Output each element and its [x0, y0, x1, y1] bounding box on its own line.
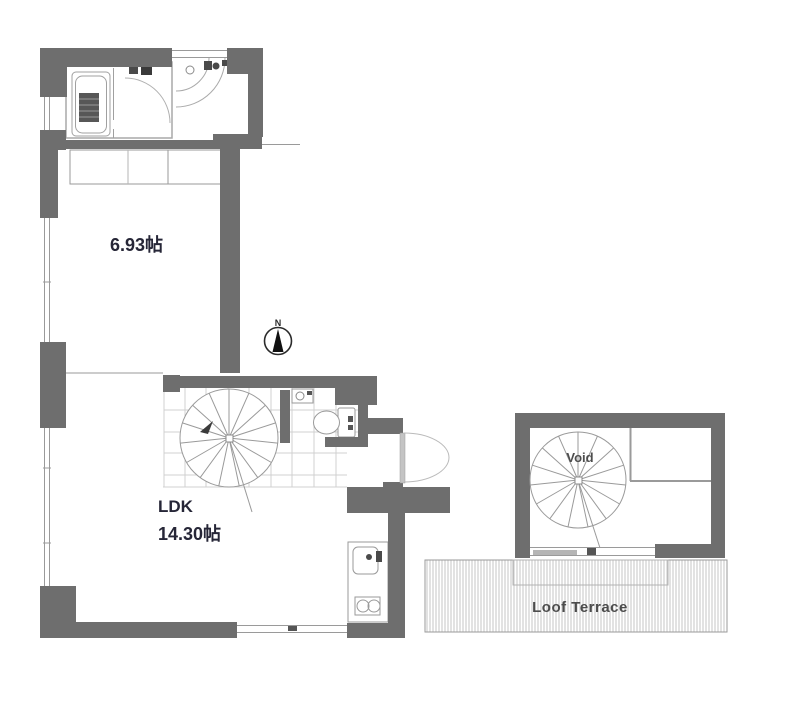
wall-segment: [40, 622, 237, 638]
wall-segment: [388, 513, 405, 638]
wall-segment: [227, 48, 263, 74]
void-label: Void: [566, 450, 593, 465]
entrance-door-swing: [404, 433, 449, 482]
wall-segment: [335, 376, 377, 405]
kitchen-faucet-base-icon: [376, 551, 382, 562]
sliding-door-handle-icon: [587, 548, 596, 555]
entrance-door-leaf: [400, 433, 405, 483]
window-left-3: [43, 427, 51, 587]
toilet-control-icon: [348, 425, 353, 430]
washbasin-drain: [186, 66, 194, 74]
void-room-divider: [630, 428, 711, 481]
wall-segment: [40, 130, 66, 150]
compass-north-label: N: [275, 318, 282, 328]
bedroom-area-label: 6.93帖: [110, 234, 163, 255]
wall-segment: [711, 428, 725, 557]
entrance: [400, 433, 449, 483]
kitchen: [348, 542, 388, 622]
wall-segment: [347, 623, 388, 638]
terrace-label: Loof Terrace: [532, 599, 628, 616]
wall-segment: [515, 413, 725, 428]
roof-terrace-deck: [425, 560, 727, 632]
wall-segment: [40, 48, 67, 97]
kitchen-sink: [353, 547, 378, 574]
window-left-1: [45, 96, 50, 131]
wall-segment: [347, 487, 450, 513]
shower-mixer-icon: [129, 67, 138, 74]
bathtub-panel: [79, 93, 99, 122]
kitchen-faucet-icon: [366, 554, 372, 560]
wall-segment: [40, 586, 76, 623]
wall-segment: [248, 74, 263, 137]
toilet-tank: [338, 408, 355, 437]
closet-left: [70, 150, 168, 184]
wall-segment: [65, 48, 172, 67]
spiral-staircase-main: [180, 389, 278, 512]
toilet-bowl: [314, 411, 340, 434]
north-arrow-icon: [273, 329, 284, 352]
floor-plan-drawing: N 6.93帖 LDK 14.30帖 Void Loof Terrace: [0, 0, 800, 722]
washroom: [176, 58, 228, 107]
wall-segment: [220, 149, 240, 373]
bathroom: [66, 62, 172, 138]
wall-segment: [655, 544, 725, 558]
wall-segment: [40, 150, 58, 218]
wall-segment: [65, 140, 233, 149]
toilet-basin-faucet-icon: [307, 391, 312, 395]
void-room: [530, 428, 711, 548]
spiral-staircase-post: [226, 435, 233, 442]
north-compass: N: [265, 318, 292, 355]
sliding-door-track: [533, 550, 577, 555]
wall-segment: [40, 342, 66, 428]
window-left-2: [43, 217, 51, 343]
floor-plan-page: N 6.93帖 LDK 14.30帖 Void Loof Terrace: [0, 0, 800, 722]
wall-segment: [368, 418, 403, 434]
closets: [70, 150, 230, 184]
wall-segment: [280, 390, 290, 443]
wall-segment: [325, 437, 368, 447]
washbasin-faucet-icon: [204, 61, 212, 70]
wall-segment: [163, 376, 335, 388]
ldk-area-label: 14.30帖: [158, 523, 221, 544]
washbasin-knob-icon: [213, 63, 220, 70]
spiral-staircase-void-post: [575, 477, 582, 484]
window-handle-icon: [288, 626, 297, 631]
ldk-name-label: LDK: [158, 497, 194, 516]
toilet-flush-icon: [348, 416, 353, 422]
window-top: [172, 51, 228, 58]
wall-segment: [515, 428, 530, 558]
